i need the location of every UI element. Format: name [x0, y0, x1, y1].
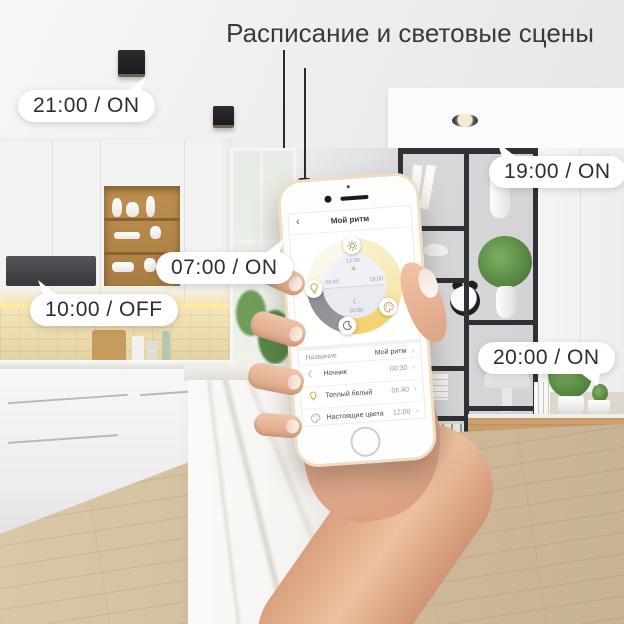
- pendant-cord: [283, 50, 285, 150]
- scene-label: Ночник: [323, 369, 347, 378]
- marketing-banner: ‹ Мой ритм 12:00 ☀ 06:00 18:00 ☾ 00:00: [0, 0, 624, 624]
- rhythm-dial[interactable]: 12:00 ☀ 06:00 18:00 ☾ 00:00: [303, 235, 405, 337]
- cabinet-seam: [100, 140, 101, 308]
- phone-screen: ‹ Мой ритм 12:00 ☀ 06:00 18:00 ☾ 00:00: [287, 205, 426, 427]
- schedule-callout-07: 07:00 / ON: [156, 252, 293, 284]
- jar: [147, 341, 157, 361]
- bulb-icon: [309, 283, 319, 296]
- niche-shelf: [104, 218, 180, 221]
- schedule-callout-20: 20:00 / ON: [478, 342, 615, 374]
- callout-text: 07:00 / ON: [171, 256, 278, 279]
- name-label: Название: [305, 353, 337, 362]
- vase: [126, 202, 139, 217]
- plant-vase: [496, 286, 516, 318]
- palette-handle[interactable]: [379, 297, 398, 316]
- dial-morning-label: 06:00: [325, 279, 339, 286]
- ceiling-cube-spotlight: [118, 50, 145, 77]
- ceiling-panel: [388, 88, 624, 154]
- potted-plant: [478, 236, 532, 288]
- app-title: Мой ритм: [289, 211, 411, 228]
- moon-icon: [342, 320, 353, 331]
- bird-figurine: [424, 244, 448, 256]
- sun-icon: [346, 239, 358, 251]
- fingernail: [285, 419, 299, 434]
- palette-icon: [382, 301, 394, 313]
- scene-time: 06:40: [391, 387, 409, 395]
- sensor-dot: [347, 185, 350, 188]
- bowls-stack: [112, 262, 134, 272]
- bowl: [114, 232, 140, 239]
- page-title: Расписание и световые сцены: [205, 18, 615, 49]
- sunrise-handle[interactable]: [342, 236, 361, 255]
- chevron-right-icon: ›: [415, 406, 418, 415]
- fingernail: [287, 325, 304, 344]
- ceiling-cube-spotlight: [213, 106, 234, 128]
- chevron-right-icon: ›: [412, 362, 415, 371]
- dial-face: 12:00 ☀ 06:00 18:00 ☾ 00:00: [320, 252, 388, 320]
- name-value: Мой ритм: [375, 348, 407, 357]
- vase: [146, 196, 155, 217]
- callout-text: 21:00 / ON: [33, 94, 140, 117]
- bulb-icon: [309, 391, 321, 405]
- schedule-callout-21: 21:00 / ON: [18, 90, 155, 122]
- front-camera: [324, 195, 331, 202]
- vase: [144, 258, 156, 272]
- recessed-light: [452, 114, 478, 127]
- cutting-board: [92, 330, 126, 361]
- cooker-hood: [6, 256, 96, 286]
- scene-time: 00:30: [390, 365, 408, 373]
- pinky-finger: [253, 412, 303, 439]
- callout-text: 20:00 / ON: [493, 346, 600, 369]
- vase: [150, 226, 161, 239]
- palette-icon: [310, 413, 322, 427]
- dial-evening-label: 18:00: [369, 276, 383, 283]
- bulb-handle[interactable]: [304, 279, 323, 298]
- vase: [112, 198, 122, 217]
- chevron-right-icon: ›: [414, 384, 417, 393]
- scene-label: Теплый белый: [325, 389, 373, 399]
- moon-handle[interactable]: [338, 316, 357, 335]
- schedule-callout-19: 19:00 / ON: [489, 156, 624, 188]
- callout-text: 19:00 / ON: [504, 160, 611, 183]
- bottle: [162, 331, 170, 361]
- home-button[interactable]: [350, 426, 382, 458]
- chevron-right-icon: ›: [411, 346, 414, 355]
- jar: [132, 336, 144, 361]
- moon-icon: ☾: [307, 369, 319, 383]
- fingernail: [286, 373, 302, 391]
- books: [534, 382, 550, 414]
- schedule-callout-10: 10:00 / OFF: [30, 294, 178, 326]
- scene-time: 12:00: [393, 408, 411, 416]
- plant-pot: [558, 396, 584, 416]
- speaker-grill: [340, 195, 368, 201]
- scene-label: Настоящие цвета: [327, 410, 384, 421]
- pendant-cord: [304, 68, 306, 180]
- callout-text: 10:00 / OFF: [45, 298, 163, 321]
